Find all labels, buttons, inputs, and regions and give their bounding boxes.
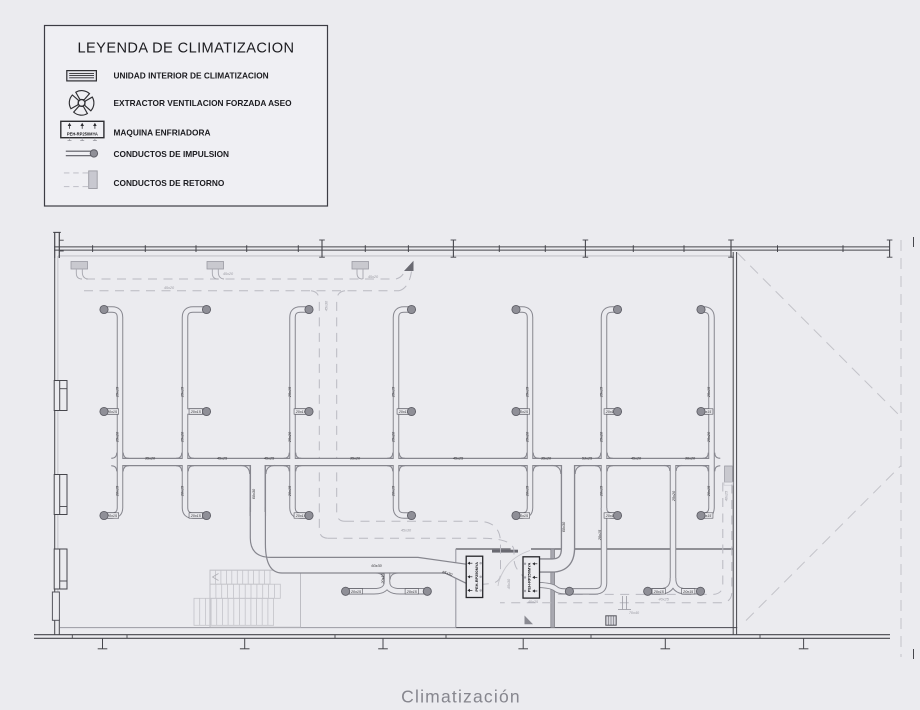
svg-text:20x15: 20x15 — [406, 590, 418, 594]
svg-text:25x15: 25x15 — [288, 386, 292, 398]
svg-text:20x15: 20x15 — [190, 514, 202, 518]
svg-text:PEH-RP250MYA: PEH-RP250MYA — [526, 563, 531, 593]
svg-text:60x30: 60x30 — [371, 564, 382, 568]
svg-text:70x40: 70x40 — [629, 611, 640, 615]
svg-text:25x15: 25x15 — [181, 386, 185, 398]
svg-text:60x30: 60x30 — [562, 521, 566, 532]
svg-text:Climatización: Climatización — [401, 687, 521, 707]
svg-text:25x15: 25x15 — [116, 386, 120, 398]
svg-text:25x20: 25x20 — [672, 490, 676, 502]
svg-text:25x20: 25x20 — [181, 431, 185, 443]
svg-text:20x15: 20x15 — [392, 485, 396, 497]
svg-text:40x25: 40x25 — [659, 598, 670, 602]
svg-text:45x20: 45x20 — [368, 275, 379, 279]
svg-text:PEH-RP250MYA: PEH-RP250MYA — [67, 132, 98, 137]
svg-text:35x20: 35x20 — [145, 456, 156, 460]
svg-text:60x30: 60x30 — [252, 488, 256, 499]
svg-text:40x25: 40x25 — [724, 490, 728, 501]
svg-text:CONDUCTOS DE RETORNO: CONDUCTOS DE RETORNO — [114, 178, 225, 188]
svg-text:LEYENDA DE CLIMATIZACION: LEYENDA DE CLIMATIZACION — [78, 41, 295, 57]
svg-text:45x30: 45x30 — [507, 578, 511, 589]
svg-text:20x15: 20x15 — [598, 529, 602, 541]
svg-text:25x20: 25x20 — [707, 431, 711, 443]
svg-text:45x30: 45x30 — [401, 529, 412, 533]
svg-text:45x25: 45x25 — [217, 456, 228, 460]
svg-text:25x20: 25x20 — [392, 431, 396, 443]
svg-text:20x15: 20x15 — [116, 485, 120, 497]
svg-text:45x25: 45x25 — [453, 456, 464, 460]
svg-text:20x15: 20x15 — [707, 485, 711, 497]
svg-text:20x15: 20x15 — [682, 590, 694, 594]
svg-text:20x15: 20x15 — [181, 485, 185, 497]
svg-text:45x30: 45x30 — [325, 300, 329, 311]
svg-text:20x15: 20x15 — [653, 590, 665, 594]
svg-text:EXTRACTOR VENTILACION FORZADA: EXTRACTOR VENTILACION FORZADA ASEO — [114, 98, 293, 108]
svg-text:53x25: 53x25 — [582, 456, 593, 460]
svg-text:20x15: 20x15 — [381, 572, 385, 584]
svg-text:25x15: 25x15 — [600, 386, 604, 398]
svg-text:45x20: 45x20 — [631, 456, 642, 460]
svg-text:PEH-RP250MYA: PEH-RP250MYA — [474, 562, 479, 592]
svg-text:25x20: 25x20 — [116, 431, 120, 443]
svg-text:UNIDAD INTERIOR DE CLIMATIZACI: UNIDAD INTERIOR DE CLIMATIZACION — [114, 70, 269, 80]
svg-text:20x15: 20x15 — [190, 410, 202, 414]
svg-text:20x15: 20x15 — [600, 485, 604, 497]
svg-text:45x20: 45x20 — [164, 286, 175, 290]
svg-text:MAQUINA ENFRIADORA: MAQUINA ENFRIADORA — [114, 127, 211, 137]
svg-text:35x20: 35x20 — [350, 456, 361, 460]
svg-text:36x20: 36x20 — [685, 456, 696, 460]
svg-text:20x15: 20x15 — [350, 590, 362, 594]
svg-text:25x15: 25x15 — [392, 386, 396, 398]
svg-text:20x15: 20x15 — [288, 485, 292, 497]
svg-text:25x15: 25x15 — [707, 386, 711, 398]
svg-text:45x20: 45x20 — [223, 272, 234, 276]
svg-text:25x20: 25x20 — [526, 431, 530, 443]
svg-text:20x15: 20x15 — [526, 485, 530, 497]
svg-text:35x20: 35x20 — [541, 456, 552, 460]
svg-text:45x25: 45x25 — [264, 456, 275, 460]
svg-text:40x25: 40x25 — [528, 600, 539, 604]
svg-text:25x15: 25x15 — [526, 386, 530, 398]
svg-text:CONDUCTOS DE IMPULSION: CONDUCTOS DE IMPULSION — [114, 149, 230, 159]
svg-text:25x20: 25x20 — [600, 431, 604, 443]
svg-text:25x20: 25x20 — [288, 431, 292, 443]
